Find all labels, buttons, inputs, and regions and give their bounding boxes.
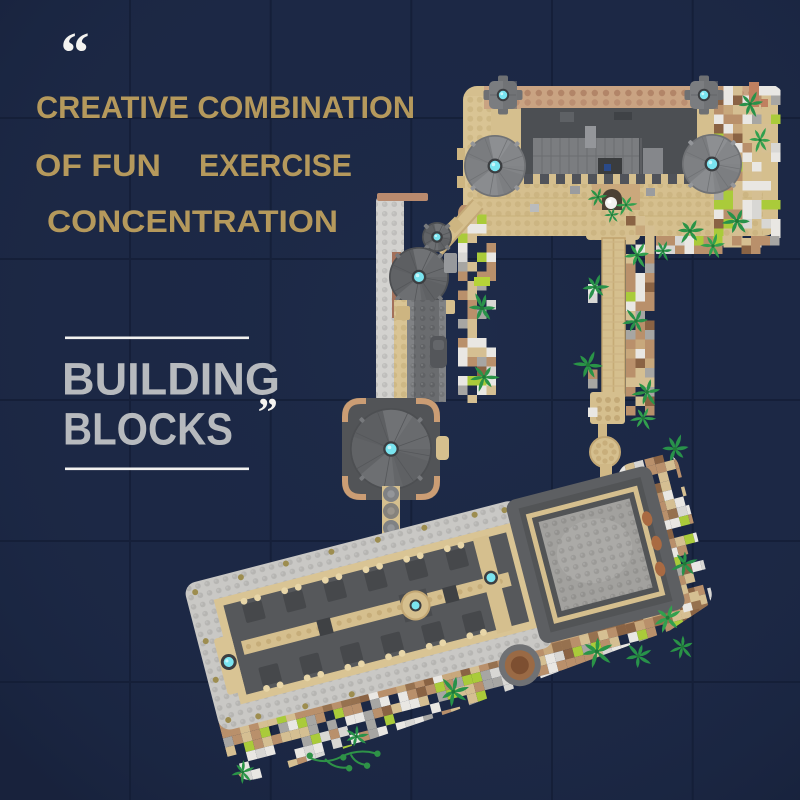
svg-text:CONCENTRATION: CONCENTRATION <box>47 203 338 239</box>
svg-text:EXERCISE: EXERCISE <box>199 147 352 183</box>
svg-text:BLOCKS: BLOCKS <box>63 404 233 455</box>
svg-text:”: ” <box>258 389 278 434</box>
svg-text:CREATIVE COMBINATION: CREATIVE COMBINATION <box>36 89 415 125</box>
svg-text:“: “ <box>61 20 90 85</box>
svg-text:BUILDING: BUILDING <box>62 354 280 405</box>
svg-text:OF FUN: OF FUN <box>35 147 161 183</box>
